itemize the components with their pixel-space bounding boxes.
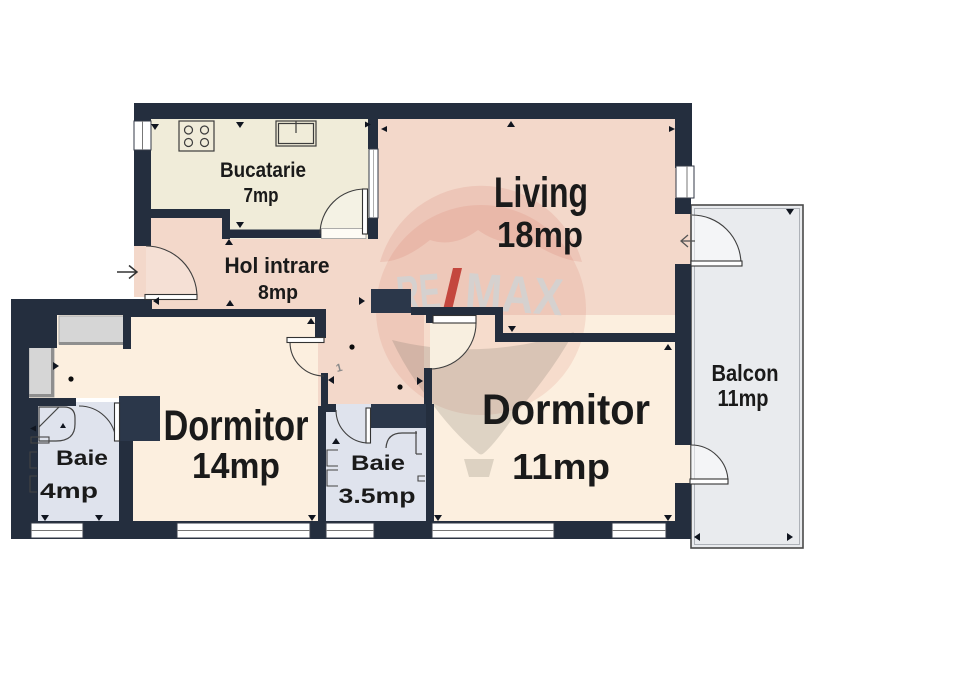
svg-text:Baie: Baie xyxy=(351,452,405,475)
svg-text:11mp: 11mp xyxy=(718,385,769,411)
svg-text:4mp: 4mp xyxy=(40,480,98,503)
svg-text:Dormitor: Dormitor xyxy=(482,386,650,434)
svg-text:8mp: 8mp xyxy=(258,282,298,304)
svg-text:Hol intrare: Hol intrare xyxy=(225,253,330,278)
svg-text:14mp: 14mp xyxy=(192,445,280,486)
svg-text:Baie: Baie xyxy=(56,447,108,470)
svg-text:11mp: 11mp xyxy=(512,446,610,487)
svg-text:MAX: MAX xyxy=(463,263,565,328)
svg-text:Bucatarie: Bucatarie xyxy=(220,159,306,182)
svg-text:Dormitor: Dormitor xyxy=(164,402,309,450)
svg-text:Living: Living xyxy=(494,169,588,217)
svg-text:Balcon: Balcon xyxy=(712,360,779,386)
svg-text:7mp: 7mp xyxy=(244,185,279,207)
svg-text:3.5mp: 3.5mp xyxy=(339,485,416,508)
svg-text:18mp: 18mp xyxy=(497,214,583,255)
